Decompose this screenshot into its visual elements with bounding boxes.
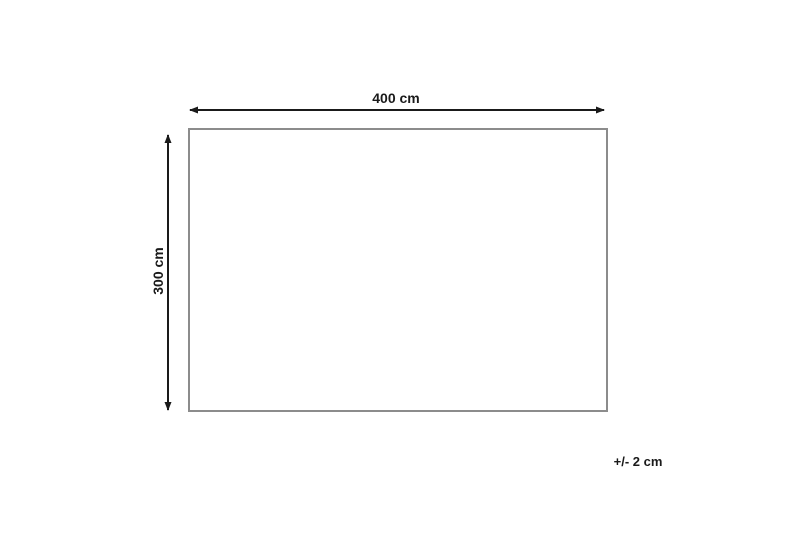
dimension-diagram: 400 cm 300 cm +/- 2 cm: [0, 0, 800, 533]
product-outline-rectangle: [188, 128, 608, 412]
height-dimension-label: 300 cm: [150, 247, 166, 294]
width-dimension-label: 400 cm: [372, 90, 419, 106]
tolerance-label: +/- 2 cm: [614, 454, 663, 469]
